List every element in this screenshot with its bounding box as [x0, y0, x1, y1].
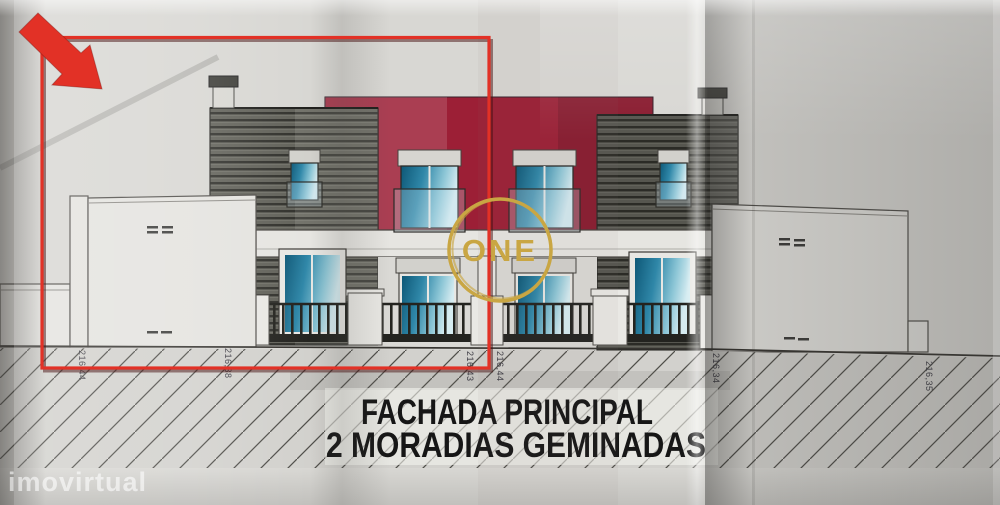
center-left-upper-window [394, 150, 465, 232]
shutter-box [658, 150, 689, 163]
left-bright-zone [14, 0, 314, 505]
photo-of-architectural-elevation: FACHADA PRINCIPAL 2 MORADIAS GEMINADAS 2… [0, 0, 1000, 505]
dimension-label: 216,43 [465, 351, 475, 382]
one-logo-label: ONE [462, 233, 538, 268]
right-tower-upper-window [656, 150, 691, 207]
elevation-photo-canvas: FACHADA PRINCIPAL 2 MORADIAS GEMINADAS 2… [0, 0, 1000, 505]
glass-balustrade [656, 182, 691, 207]
shutter-box [398, 150, 461, 166]
imovirtual-watermark: imovirtual [8, 467, 147, 497]
bottom-shade [0, 468, 1000, 505]
top-right-light [540, 0, 1000, 140]
center-fold-shadow [310, 0, 390, 505]
